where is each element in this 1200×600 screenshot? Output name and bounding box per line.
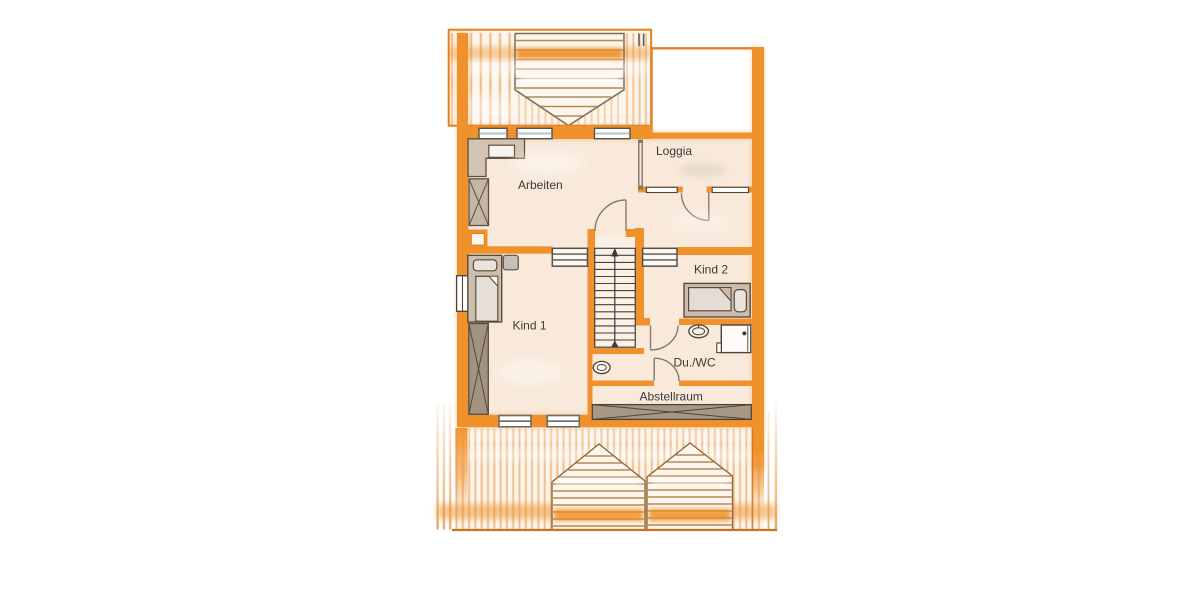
svg-text:Kind 2: Kind 2	[694, 263, 728, 277]
svg-text:Du./WC: Du./WC	[674, 356, 716, 370]
svg-text:Kind 1: Kind 1	[513, 319, 547, 333]
svg-text:Loggia: Loggia	[656, 144, 692, 158]
svg-text:Abstellraum: Abstellraum	[640, 390, 703, 404]
svg-text:Arbeiten: Arbeiten	[518, 178, 563, 192]
